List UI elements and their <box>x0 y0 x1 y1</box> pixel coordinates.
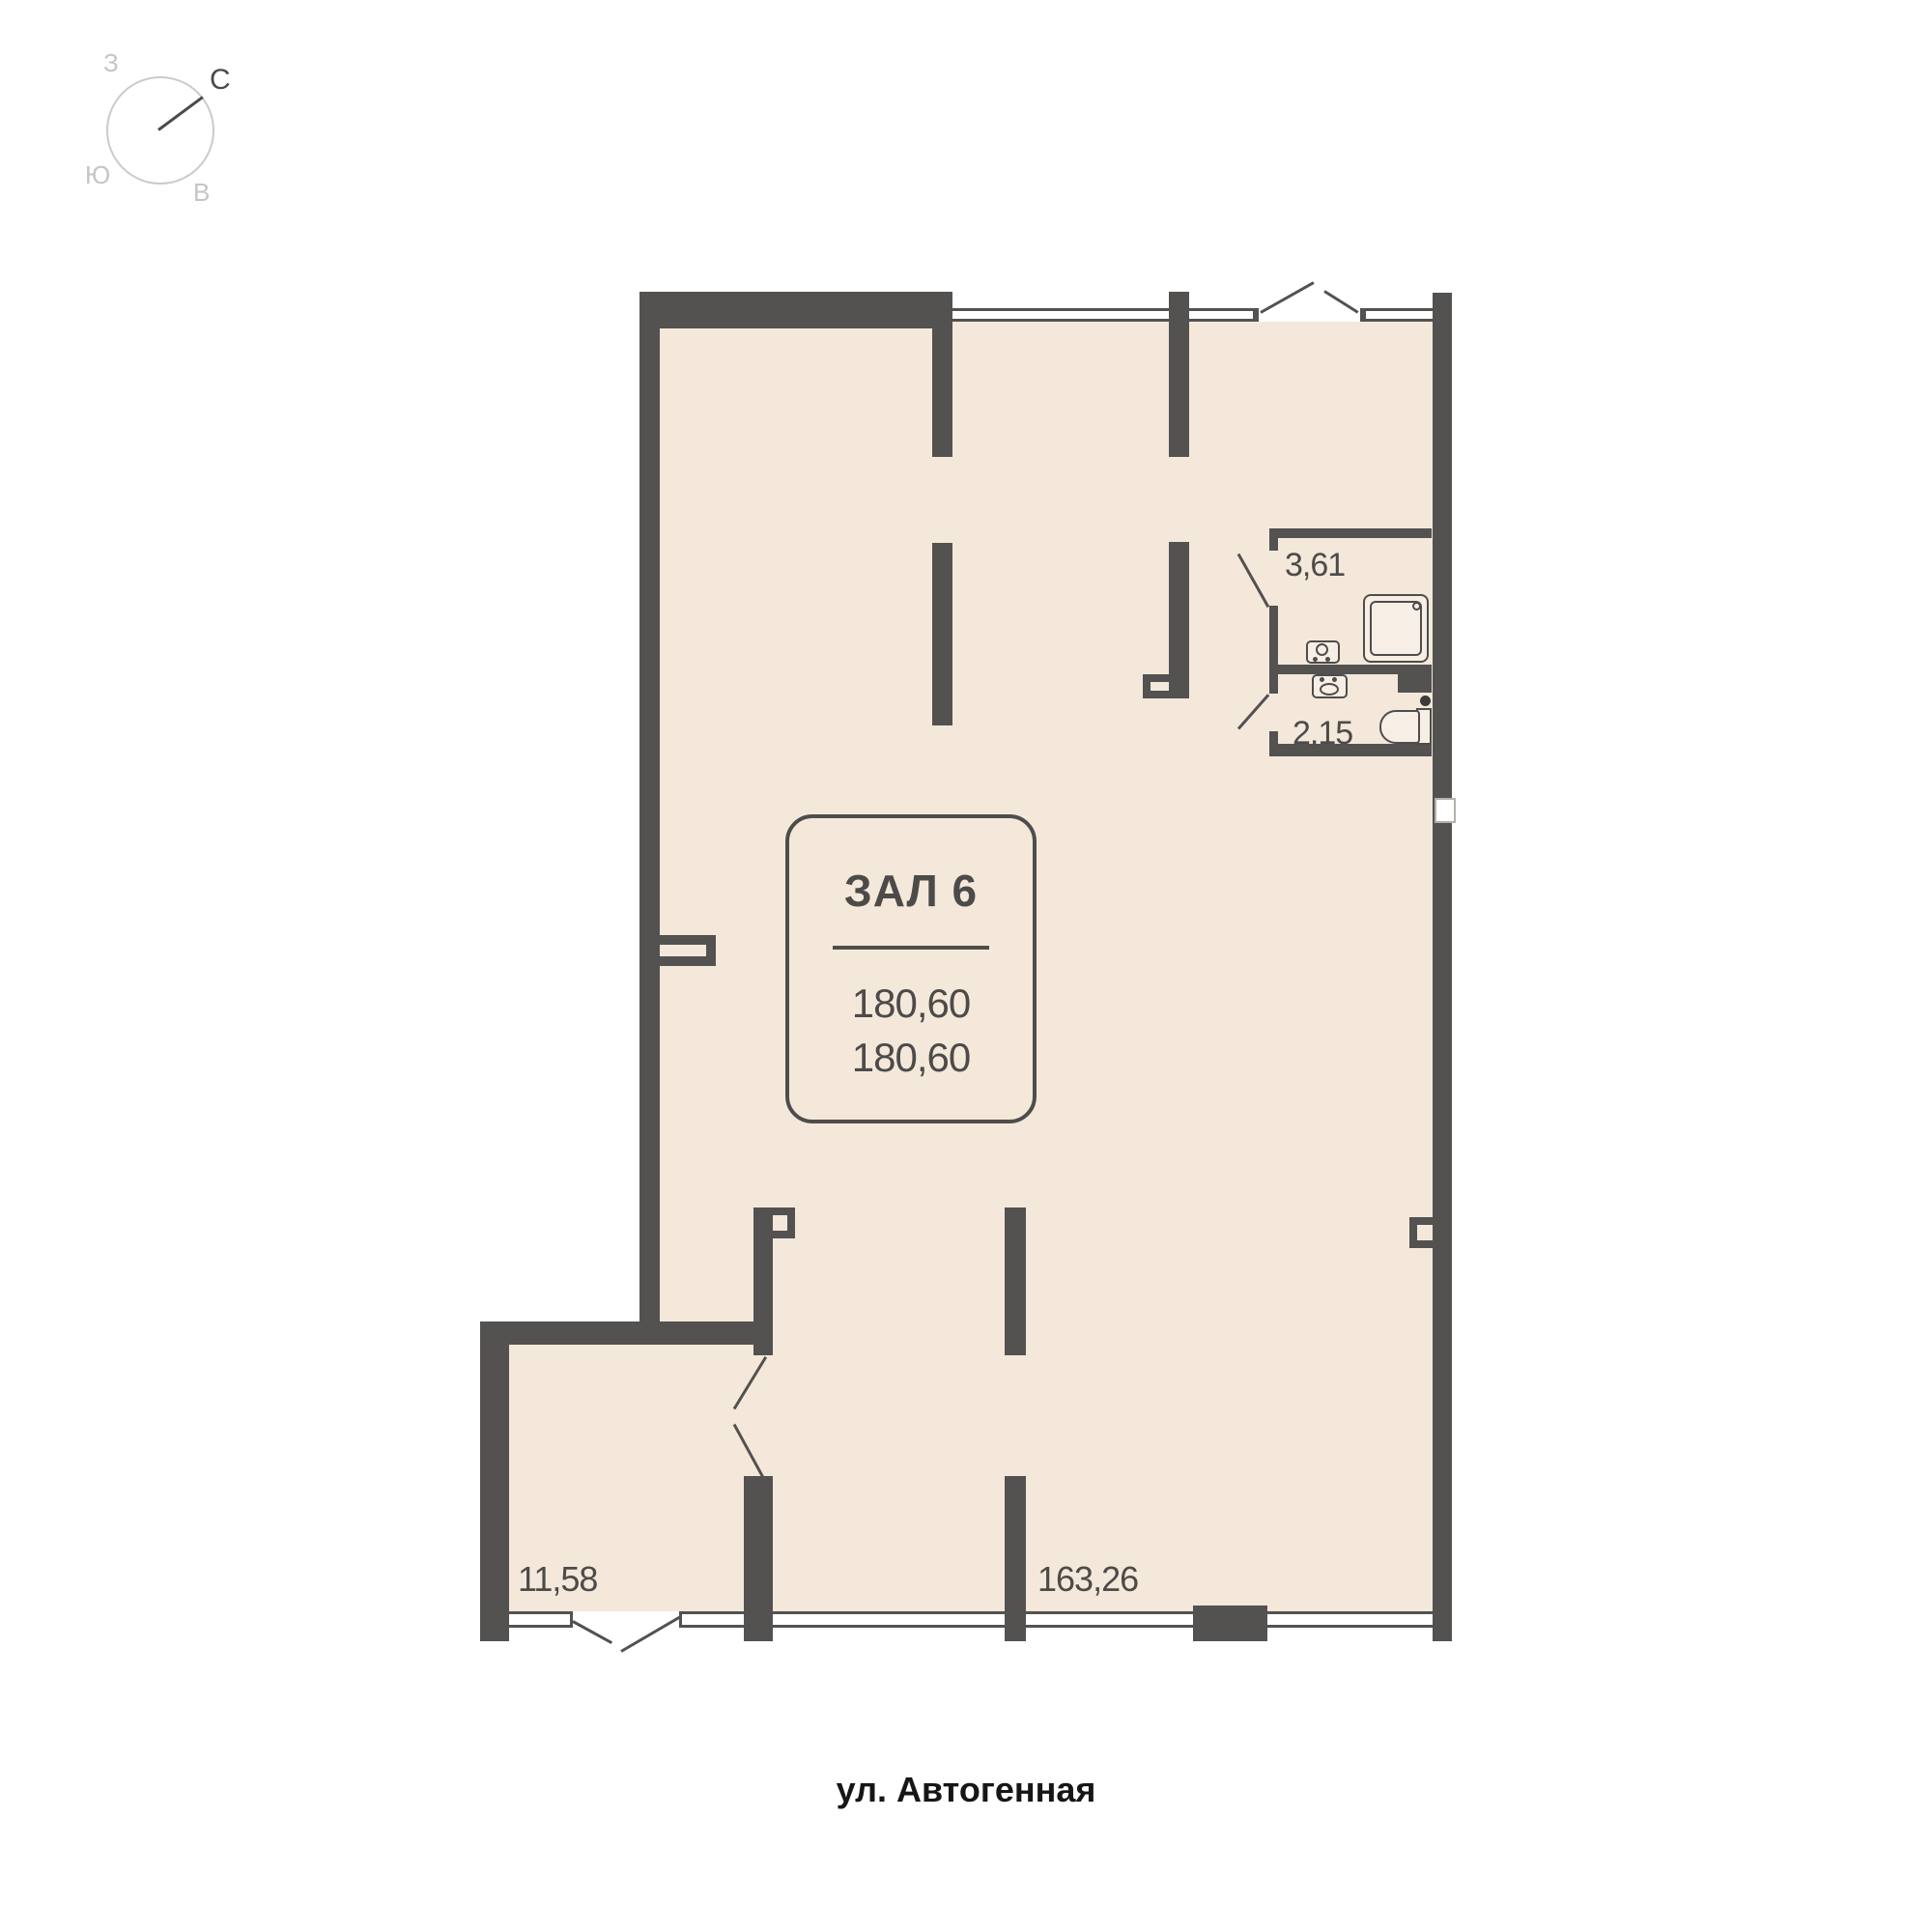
washer-knob <box>1325 657 1330 662</box>
compass-east: В <box>193 178 210 208</box>
lower-right-wall-lower <box>1005 1476 1026 1641</box>
bathroom-wall-left <box>1269 606 1278 665</box>
wc-wall-left-upper <box>1269 674 1278 694</box>
wc-area-label: 2,15 <box>1293 715 1352 753</box>
toilet-flush-icon <box>1420 696 1431 706</box>
window-bottom-2 <box>679 1611 744 1628</box>
unit-title: ЗАЛ 6 <box>789 865 1033 917</box>
window-top-3 <box>1360 308 1433 322</box>
partition-a-upper <box>932 328 952 457</box>
unit-area-usable: 180,60 <box>789 1031 1033 1085</box>
window-bottom-4 <box>1026 1611 1193 1628</box>
bathroom-wall-top-cap <box>1269 528 1278 551</box>
bathroom-area-label: 3,61 <box>1285 547 1345 584</box>
unit-area-total: 180,60 <box>789 977 1033 1031</box>
street-name-label: ул. Автогенная <box>753 1770 1179 1810</box>
exterior-door-leaf-left <box>572 1620 612 1644</box>
entry-room-wall-top <box>480 1321 773 1345</box>
wall-left <box>639 292 660 1345</box>
compass-circle <box>106 76 214 185</box>
bathroom-wall-step <box>1398 665 1432 693</box>
entry-room-wall-left <box>480 1321 509 1641</box>
radiator-icon <box>660 935 716 966</box>
sink-tap <box>1320 677 1324 682</box>
entry-room-area-label: 11,58 <box>518 1559 597 1600</box>
bathroom-wall-top <box>1269 528 1432 538</box>
compass-west: З <box>103 48 119 78</box>
toilet-icon <box>1379 710 1420 744</box>
lower-left-wall-lower <box>744 1476 773 1641</box>
compass-north: С <box>210 64 231 97</box>
shower-drain-icon <box>1412 602 1421 611</box>
right-wall-niche <box>1435 798 1456 823</box>
window-top-1 <box>952 308 1169 322</box>
bathroom-wall-mid <box>1269 665 1398 674</box>
right-wall-shaft-icon <box>1409 1217 1433 1248</box>
window-bottom-3 <box>773 1611 1005 1628</box>
exterior-door-leaf-right <box>620 1616 680 1653</box>
sink-tap <box>1332 677 1337 682</box>
lower-left-shaft-icon <box>773 1207 795 1238</box>
washer-knob <box>1313 657 1318 662</box>
unit-info-card: ЗАЛ 6 180,60 180,60 <box>785 814 1037 1123</box>
window-bottom-5 <box>1267 1611 1433 1628</box>
main-hall-area-label: 163,26 <box>1037 1559 1138 1600</box>
window-bottom-1 <box>509 1611 573 1628</box>
washer-door-icon <box>1316 643 1328 656</box>
main-hall-floor <box>660 322 1433 1611</box>
top-door-leaf-left <box>1260 281 1314 314</box>
partition-b-lower <box>1169 542 1189 698</box>
partition-a-lower <box>932 543 952 725</box>
partition-b-upper <box>1169 292 1189 457</box>
lower-left-wall-upper <box>753 1207 773 1355</box>
lower-right-wall-upper <box>1005 1207 1026 1355</box>
card-divider <box>833 946 989 950</box>
sink-basin-icon <box>1320 683 1339 696</box>
compass-south: Ю <box>85 160 110 190</box>
vent-shaft-icon <box>1143 674 1169 698</box>
bottom-wall-block <box>1193 1605 1267 1641</box>
wall-right <box>1433 293 1452 1641</box>
top-door-leaf-right <box>1323 290 1358 313</box>
window-top-2 <box>1189 308 1259 322</box>
wall-top <box>639 292 952 328</box>
floor-plan-page: З С Ю В <box>0 0 1932 1932</box>
